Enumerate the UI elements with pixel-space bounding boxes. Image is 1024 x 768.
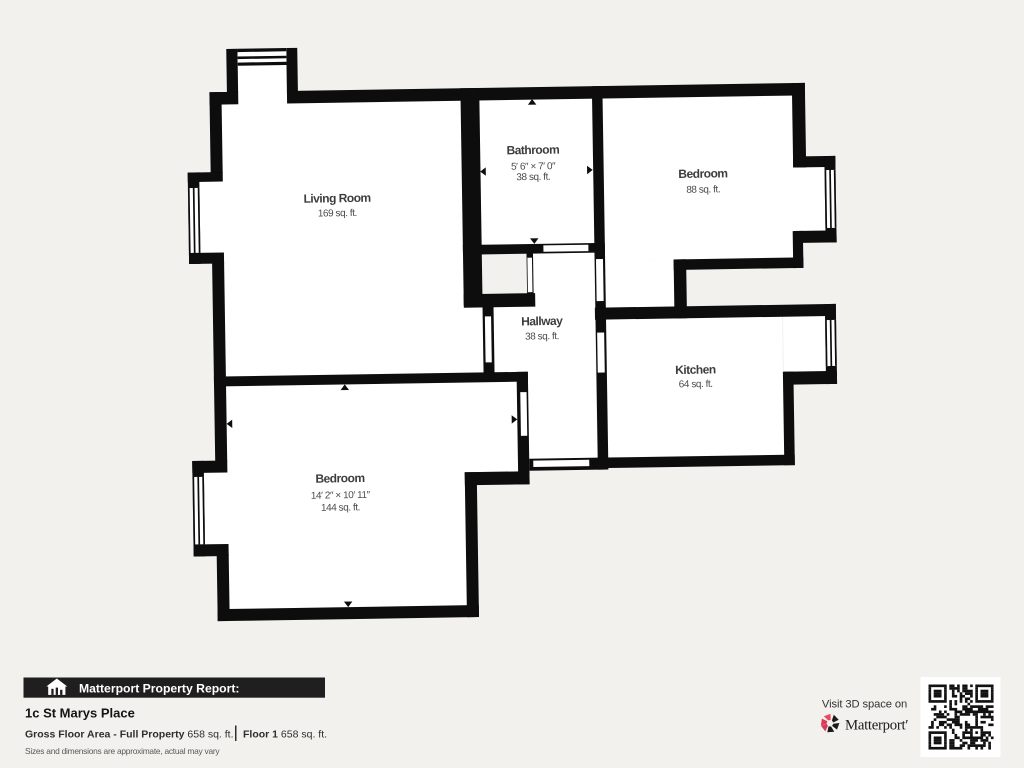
svg-text:144 sq. ft.: 144 sq. ft. bbox=[321, 502, 360, 514]
svg-text:88 sq. ft.: 88 sq. ft. bbox=[686, 184, 720, 196]
svg-text:Bathroom: Bathroom bbox=[506, 143, 559, 158]
svg-text:Matterport′: Matterport′ bbox=[845, 718, 908, 734]
svg-text:Living Room: Living Room bbox=[303, 191, 370, 206]
svg-text:38 sq. ft.: 38 sq. ft. bbox=[516, 172, 550, 184]
svg-text:64 sq. ft.: 64 sq. ft. bbox=[679, 379, 713, 391]
svg-text:Bedroom: Bedroom bbox=[678, 166, 727, 181]
svg-text:Visit 3D space on: Visit 3D space on bbox=[822, 699, 907, 711]
svg-text:Hallway: Hallway bbox=[521, 314, 563, 329]
svg-text:Matterport Property Report:: Matterport Property Report: bbox=[79, 682, 239, 696]
svg-text:14′ 2″ × 10′ 11″: 14′ 2″ × 10′ 11″ bbox=[311, 490, 371, 502]
svg-text:Floor 1 658 sq. ft.: Floor 1 658 sq. ft. bbox=[243, 729, 327, 741]
svg-text:Sizes and dimensions are appro: Sizes and dimensions are approximate, ac… bbox=[25, 746, 220, 756]
svg-text:169 sq. ft.: 169 sq. ft. bbox=[318, 208, 357, 220]
svg-text:1c St Marys Place: 1c St Marys Place bbox=[25, 706, 135, 721]
svg-text:Bedroom: Bedroom bbox=[315, 471, 364, 486]
svg-text:Kitchen: Kitchen bbox=[675, 362, 716, 377]
svg-text:38 sq. ft.: 38 sq. ft. bbox=[525, 331, 559, 343]
svg-text:Gross Floor Area - Full Proper: Gross Floor Area - Full Property 658 sq.… bbox=[25, 729, 234, 741]
